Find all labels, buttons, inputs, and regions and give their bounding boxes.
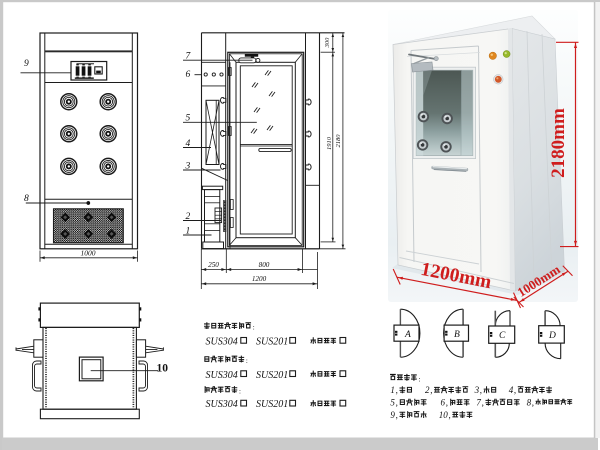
svg-text:SUS304: SUS304 bbox=[206, 399, 238, 410]
svg-text:10: 10 bbox=[439, 410, 449, 420]
svg-text:,: , bbox=[396, 385, 398, 395]
svg-text:,: , bbox=[396, 410, 398, 420]
svg-text:SUS201: SUS201 bbox=[256, 399, 288, 410]
svg-text::: : bbox=[246, 357, 248, 365]
svg-text:3: 3 bbox=[474, 385, 480, 395]
svg-text:,: , bbox=[532, 398, 534, 408]
svg-text:,: , bbox=[480, 385, 482, 395]
svg-text:D: D bbox=[548, 331, 556, 341]
svg-text:C: C bbox=[499, 331, 506, 341]
svg-text:SUS304: SUS304 bbox=[206, 370, 238, 381]
svg-text:,: , bbox=[446, 398, 448, 408]
svg-text:300: 300 bbox=[324, 37, 331, 49]
svg-text:1: 1 bbox=[390, 385, 395, 395]
svg-text:,: , bbox=[430, 385, 432, 395]
svg-text:1000: 1000 bbox=[81, 249, 96, 258]
svg-text:,: , bbox=[396, 398, 398, 408]
svg-text:8: 8 bbox=[24, 194, 29, 204]
svg-text:,: , bbox=[449, 410, 451, 420]
svg-text:SUS304: SUS304 bbox=[206, 337, 238, 348]
svg-text:SUS201: SUS201 bbox=[256, 337, 288, 348]
svg-text:6: 6 bbox=[186, 70, 191, 80]
svg-text:9: 9 bbox=[24, 59, 29, 69]
svg-text:A: A bbox=[404, 330, 411, 340]
svg-text:250: 250 bbox=[208, 261, 219, 269]
svg-text:SUS201: SUS201 bbox=[256, 370, 288, 381]
svg-text:1910: 1910 bbox=[326, 136, 333, 150]
svg-text:,: , bbox=[514, 385, 516, 395]
svg-text:2180mm: 2180mm bbox=[548, 108, 569, 178]
svg-text:B: B bbox=[454, 330, 460, 340]
svg-text:,: , bbox=[482, 398, 484, 408]
svg-text:1200: 1200 bbox=[252, 275, 267, 283]
svg-text::: : bbox=[253, 324, 255, 332]
svg-text:10: 10 bbox=[157, 363, 169, 375]
svg-text:2180: 2180 bbox=[335, 134, 342, 148]
svg-text:800: 800 bbox=[259, 261, 270, 269]
svg-text::: : bbox=[419, 375, 421, 384]
svg-text::: : bbox=[239, 387, 241, 395]
